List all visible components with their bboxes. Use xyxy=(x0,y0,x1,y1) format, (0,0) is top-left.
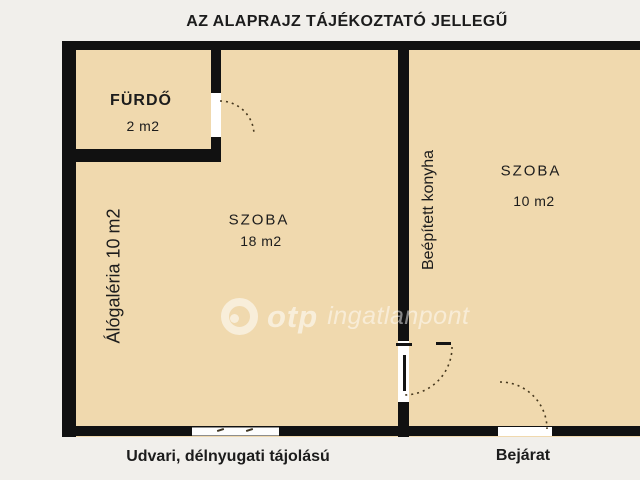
door-jamb-dash xyxy=(396,343,412,346)
room-area-bathroom: 2 m2 xyxy=(126,118,159,134)
wall-bottom xyxy=(62,426,640,436)
floorplan-image: AZ ALAPRAJZ TÁJÉKOZTATÓ JELLEGŰ FÜRDŐ 2 … xyxy=(0,0,640,480)
room-label-szoba-right: SZOBA xyxy=(501,163,562,180)
watermark: otp ingatlanpont xyxy=(221,298,469,335)
window-opening xyxy=(192,427,279,436)
room-label-szoba-left: SZOBA xyxy=(229,212,290,229)
otp-logo-icon xyxy=(221,298,258,335)
label-gallery: Álógaléria 10 m2 xyxy=(104,208,125,343)
disclaimer-title: AZ ALAPRAJZ TÁJÉKOZTATÓ JELLEGŰ xyxy=(54,13,640,31)
entrance-caption: Bejárat xyxy=(496,447,550,465)
door-swing-dash xyxy=(436,342,451,345)
room-area-szoba-right: 10 m2 xyxy=(513,193,554,209)
wall-bathroom-bottom xyxy=(62,149,221,162)
entrance-door-opening xyxy=(498,427,552,436)
room-area-szoba-left: 18 m2 xyxy=(240,233,281,249)
room-label-bathroom: FÜRDŐ xyxy=(110,92,172,110)
label-kitchen: Beépített konyha xyxy=(420,150,438,270)
watermark-name: ingatlanpont xyxy=(327,304,469,329)
bathroom-door-opening xyxy=(211,93,221,137)
door-leaf xyxy=(403,355,406,391)
orientation-caption: Udvari, délnyugati tájolású xyxy=(126,448,330,466)
watermark-brand: otp xyxy=(267,301,318,332)
wall-top xyxy=(62,41,640,50)
wall-left xyxy=(62,41,76,437)
